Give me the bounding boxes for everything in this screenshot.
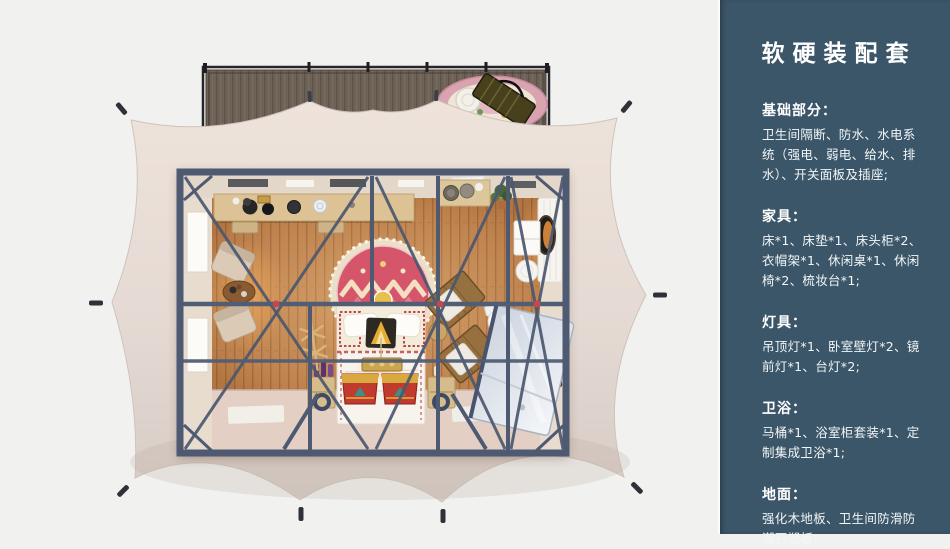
stool: [232, 222, 258, 233]
spec-heading-bath: 卫浴：: [762, 398, 926, 418]
stake-bottom-mid-right: [441, 509, 446, 523]
hat: [262, 203, 274, 215]
pole-tip-left: [307, 91, 312, 102]
leisure-table: [223, 281, 255, 303]
basket: [460, 184, 474, 198]
kettle: [288, 201, 301, 214]
bed: [337, 306, 425, 424]
plate: [314, 200, 327, 213]
stake-right-mid: [653, 293, 667, 298]
stake-bottom-left: [116, 484, 129, 497]
bottle: [328, 364, 333, 377]
spec-body-lighting: 吊顶灯*1、卧室壁灯*2、镜前灯*1、台灯*2;: [762, 337, 926, 377]
gold-box: [258, 196, 270, 203]
window-lower: [187, 318, 208, 372]
floorplan-stage: [0, 0, 718, 534]
stake-left-mid: [89, 301, 103, 306]
tent-floorplan-render: [0, 0, 718, 534]
spec-heading-furniture: 家具：: [762, 206, 926, 226]
window-upper: [187, 212, 208, 272]
spec-heading-lighting: 灯具：: [762, 312, 926, 332]
room: [178, 170, 574, 455]
spec-section-bath: 卫浴： 马桶*1、浴室柜套装*1、定制集成卫浴*1;: [762, 398, 926, 463]
spec-body-bath: 马桶*1、浴室柜套装*1、定制集成卫浴*1;: [762, 423, 926, 463]
spec-heading-basics: 基础部分：: [762, 100, 926, 120]
spec-section-lighting: 灯具： 吊顶灯*1、卧室壁灯*2、镜前灯*1、台灯*2;: [762, 312, 926, 377]
stake-bottom-mid-left: [299, 507, 304, 521]
painted-trunk: [342, 374, 378, 404]
side-console: [438, 180, 490, 206]
spec-body-furniture: 床*1、床垫*1、床头柜*2、衣帽架*1、休闲桌*1、休闲椅*2、梳妆台*1;: [762, 231, 926, 291]
spec-body-basics: 卫生间隔断、防水、水电系统（强电、弱电、给水、排水）、开关面板及插座;: [762, 125, 926, 185]
spec-section-floor: 地面： 强化木地板、卫生间防滑防潮石塑板;: [762, 484, 926, 549]
stake-bottom-right: [630, 481, 643, 494]
spec-section-basics: 基础部分： 卫生间隔断、防水、水电系统（强电、弱电、给水、排水）、开关面板及插座…: [762, 100, 926, 185]
spec-body-floor: 强化木地板、卫生间防滑防潮石塑板;: [762, 509, 926, 549]
spec-heading-floor: 地面：: [762, 484, 926, 504]
sidebar-title: 软硬装配套: [752, 34, 926, 68]
vanity-table: [514, 221, 540, 255]
pole-tip-right: [434, 90, 439, 101]
bottle: [321, 362, 326, 377]
spec-sidebar: 软硬装配套 基础部分： 卫生间隔断、防水、水电系统（强电、弱电、给水、排水）、开…: [718, 0, 950, 534]
stake-top-left: [115, 102, 128, 116]
stake-top-right: [620, 100, 633, 114]
spec-section-furniture: 家具： 床*1、床垫*1、床头柜*2、衣帽架*1、休闲桌*1、休闲椅*2、梳妆台…: [762, 206, 926, 291]
